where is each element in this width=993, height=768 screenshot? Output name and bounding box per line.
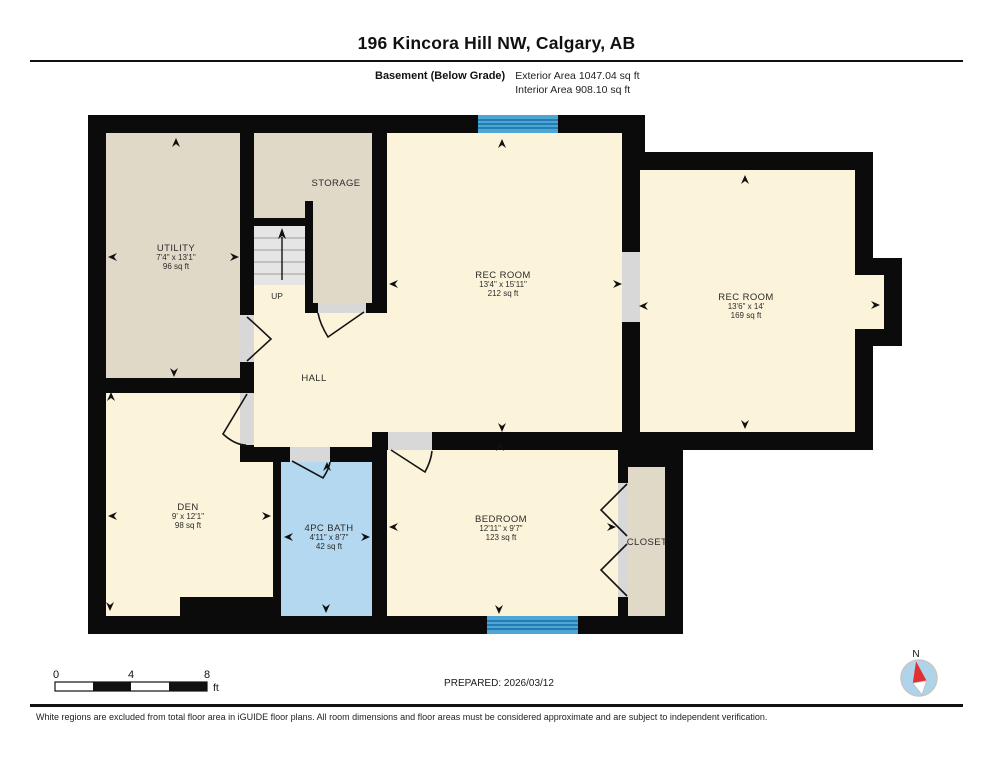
svg-text:13'4" x 15'11": 13'4" x 15'11" bbox=[479, 280, 527, 289]
floor-plan-page: 196 Kincora Hill NW, Calgary, AB Basemen… bbox=[0, 0, 993, 768]
compass-north-label: N bbox=[912, 649, 919, 660]
scale-unit: ft bbox=[213, 682, 219, 694]
svg-text:13'6" x 14': 13'6" x 14' bbox=[728, 302, 765, 311]
room-label-closet: CLOSET bbox=[627, 537, 667, 548]
rec-room-cased-opening bbox=[622, 252, 640, 322]
svg-text:9' x 12'1": 9' x 12'1" bbox=[172, 512, 204, 521]
window-bottom bbox=[487, 616, 578, 634]
svg-text:HALL: HALL bbox=[301, 373, 326, 384]
disclaimer-text: White regions are excluded from total fl… bbox=[36, 712, 966, 722]
compass-icon: N bbox=[901, 649, 937, 696]
svg-text:42 sq ft: 42 sq ft bbox=[316, 542, 343, 551]
floor-plan: UTILITY 7'4" x 13'1" 96 sq ft STORAGE RE… bbox=[0, 0, 993, 768]
svg-text:4'11" x 8'7": 4'11" x 8'7" bbox=[310, 533, 349, 542]
svg-text:123 sq ft: 123 sq ft bbox=[486, 533, 517, 542]
bath-door-opening bbox=[290, 447, 330, 462]
svg-text:12'11" x 9'7": 12'11" x 9'7" bbox=[479, 524, 522, 533]
window-top bbox=[478, 115, 558, 133]
svg-text:7'4" x 13'1": 7'4" x 13'1" bbox=[156, 253, 196, 262]
svg-text:98 sq ft: 98 sq ft bbox=[175, 521, 202, 530]
svg-text:CLOSET: CLOSET bbox=[627, 537, 667, 548]
room-label-storage: STORAGE bbox=[311, 178, 360, 189]
svg-text:212 sq ft: 212 sq ft bbox=[488, 289, 519, 298]
bedroom-door-opening bbox=[388, 432, 432, 450]
scale-tick-0: 0 bbox=[53, 669, 59, 681]
svg-text:STORAGE: STORAGE bbox=[311, 178, 360, 189]
scale-tick-4: 4 bbox=[128, 669, 134, 681]
stairs-up-label: UP bbox=[271, 291, 283, 301]
prepared-date: PREPARED: 2026/03/12 bbox=[444, 678, 554, 689]
scale-bar: 0 4 8 ft bbox=[53, 669, 219, 694]
storage-door-opening bbox=[318, 303, 366, 313]
footer-divider bbox=[30, 704, 963, 707]
svg-text:96 sq ft: 96 sq ft bbox=[163, 262, 190, 271]
stairs bbox=[254, 226, 311, 285]
room-label-hall: HALL bbox=[301, 373, 326, 384]
scale-tick-8: 8 bbox=[204, 669, 210, 681]
svg-text:169 sq ft: 169 sq ft bbox=[731, 311, 762, 320]
